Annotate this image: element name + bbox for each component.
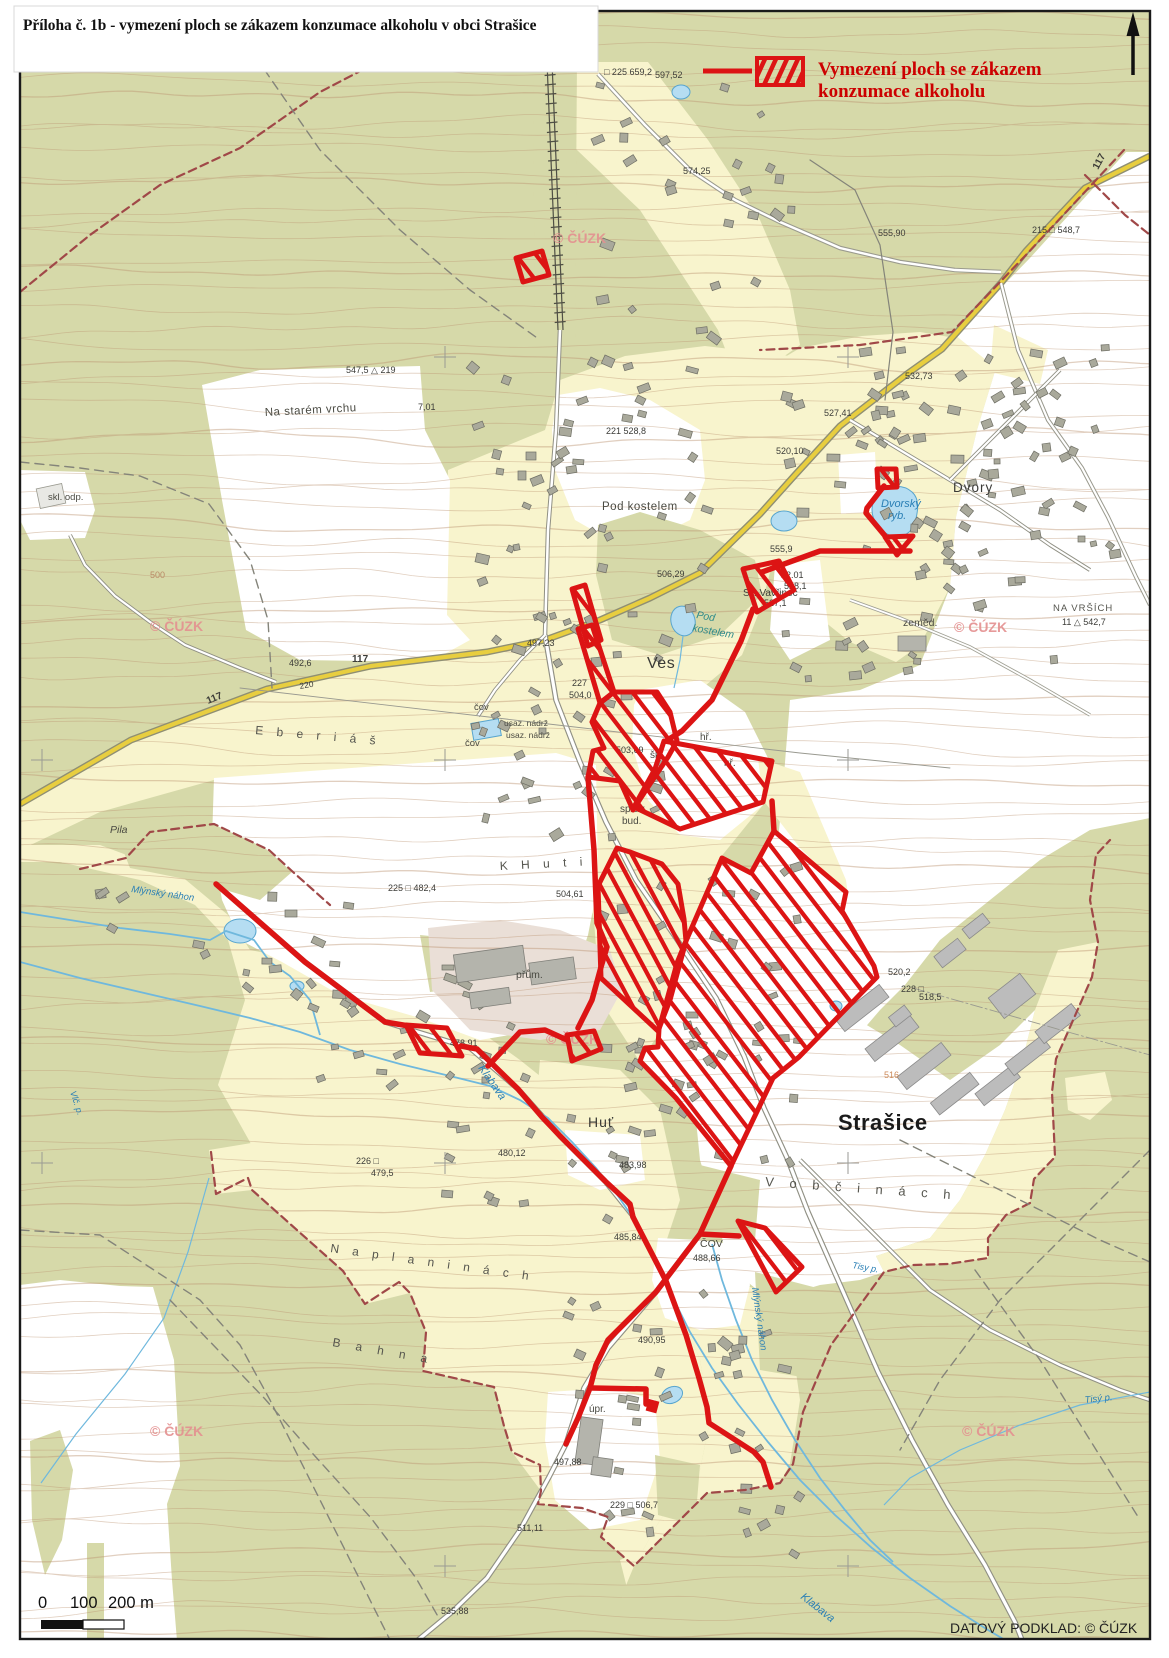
svg-text:usaz. nádrž: usaz. nádrž bbox=[504, 718, 548, 728]
svg-text:Dvory: Dvory bbox=[953, 480, 993, 495]
svg-text:520,2: 520,2 bbox=[888, 967, 911, 977]
svg-text:483,98: 483,98 bbox=[619, 1160, 647, 1170]
svg-text:532,73: 532,73 bbox=[905, 371, 933, 381]
svg-text:© ČÚZK: © ČÚZK bbox=[962, 1422, 1015, 1439]
svg-text:11 △ 542,7: 11 △ 542,7 bbox=[1062, 617, 1106, 627]
svg-text:597,52: 597,52 bbox=[655, 70, 683, 80]
svg-text:226 □: 226 □ bbox=[356, 1156, 380, 1166]
svg-text:Dvorský: Dvorský bbox=[881, 498, 922, 510]
svg-text:skl. odp.: skl. odp. bbox=[48, 492, 83, 503]
svg-text:555,90: 555,90 bbox=[878, 228, 906, 238]
svg-text:555,9: 555,9 bbox=[770, 544, 793, 554]
svg-text:490,95: 490,95 bbox=[638, 1335, 666, 1345]
svg-text:504,61: 504,61 bbox=[556, 889, 584, 899]
svg-text:215 □ 548,7: 215 □ 548,7 bbox=[1032, 225, 1080, 235]
svg-text:500: 500 bbox=[150, 570, 165, 580]
svg-text:Strašice: Strašice bbox=[838, 1110, 928, 1135]
svg-text:© ČÚZK: © ČÚZK bbox=[150, 1422, 203, 1439]
svg-text:ČOV: ČOV bbox=[700, 1237, 723, 1250]
svg-text:DATOVÝ PODKLAD: © ČÚZK: DATOVÝ PODKLAD: © ČÚZK bbox=[950, 1620, 1138, 1636]
svg-text:547,5 △ 219: 547,5 △ 219 bbox=[346, 365, 395, 375]
svg-text:© ČÚZK: © ČÚZK bbox=[553, 229, 606, 246]
svg-text:Pila: Pila bbox=[110, 824, 128, 836]
svg-text:518,5: 518,5 bbox=[919, 992, 942, 1002]
svg-text:zeměd.: zeměd. bbox=[903, 617, 937, 629]
svg-text:200 m: 200 m bbox=[108, 1594, 154, 1612]
svg-text:bud.: bud. bbox=[622, 816, 641, 827]
svg-text:488,66: 488,66 bbox=[693, 1253, 721, 1263]
svg-text:504,0: 504,0 bbox=[569, 690, 592, 700]
svg-text:221 528,8: 221 528,8 bbox=[606, 426, 646, 436]
svg-text:117: 117 bbox=[352, 654, 369, 665]
svg-text:□ 225 659,2: □ 225 659,2 bbox=[604, 67, 652, 77]
svg-text:225 □ 482,4: 225 □ 482,4 bbox=[388, 883, 436, 893]
svg-text:Vymezení ploch se zákazem: Vymezení ploch se zákazem bbox=[818, 59, 1042, 80]
svg-text:7,01: 7,01 bbox=[418, 402, 436, 412]
svg-text:100: 100 bbox=[70, 1594, 98, 1612]
svg-text:527,41: 527,41 bbox=[824, 408, 852, 418]
svg-text:Ves: Ves bbox=[647, 655, 675, 672]
svg-text:479,5: 479,5 bbox=[371, 1168, 394, 1178]
svg-text:497,88: 497,88 bbox=[554, 1457, 582, 1467]
svg-text:hř.: hř. bbox=[700, 732, 712, 743]
svg-text:535,88: 535,88 bbox=[441, 1606, 469, 1616]
svg-text:Huť: Huť bbox=[588, 1114, 614, 1130]
svg-text:© ČÚZK: © ČÚZK bbox=[150, 617, 203, 634]
svg-text:Příloha č. 1b - vymezení ploch: Příloha č. 1b - vymezení ploch se zákaze… bbox=[23, 17, 537, 34]
svg-text:Pod kostelem: Pod kostelem bbox=[602, 501, 678, 513]
svg-text:229 □ 506,7: 229 □ 506,7 bbox=[610, 1500, 658, 1510]
svg-text:čov: čov bbox=[465, 738, 480, 749]
svg-text:přům.: přům. bbox=[516, 969, 543, 981]
svg-text:485,84: 485,84 bbox=[614, 1232, 642, 1242]
svg-text:úpr.: úpr. bbox=[589, 1404, 606, 1415]
svg-text:497,23: 497,23 bbox=[527, 638, 555, 648]
svg-text:480,12: 480,12 bbox=[498, 1148, 526, 1158]
svg-text:511,11: 511,11 bbox=[517, 1523, 543, 1533]
svg-text:574,25: 574,25 bbox=[683, 166, 711, 176]
svg-text:227: 227 bbox=[572, 678, 587, 688]
svg-text:usaz. nádrž: usaz. nádrž bbox=[506, 730, 550, 740]
svg-text:492,6: 492,6 bbox=[289, 658, 312, 668]
svg-text:0: 0 bbox=[38, 1594, 47, 1612]
svg-text:520,10: 520,10 bbox=[776, 446, 804, 456]
svg-text:čov: čov bbox=[474, 702, 489, 713]
svg-text:konzumace alkoholu: konzumace alkoholu bbox=[818, 81, 986, 102]
svg-text:506,29: 506,29 bbox=[657, 569, 685, 579]
svg-text:© ČÚZK: © ČÚZK bbox=[954, 618, 1007, 635]
svg-text:516: 516 bbox=[884, 1070, 899, 1080]
svg-text:NA VRŠÍCH: NA VRŠÍCH bbox=[1053, 603, 1113, 614]
svg-text:ryb.: ryb. bbox=[888, 510, 906, 522]
